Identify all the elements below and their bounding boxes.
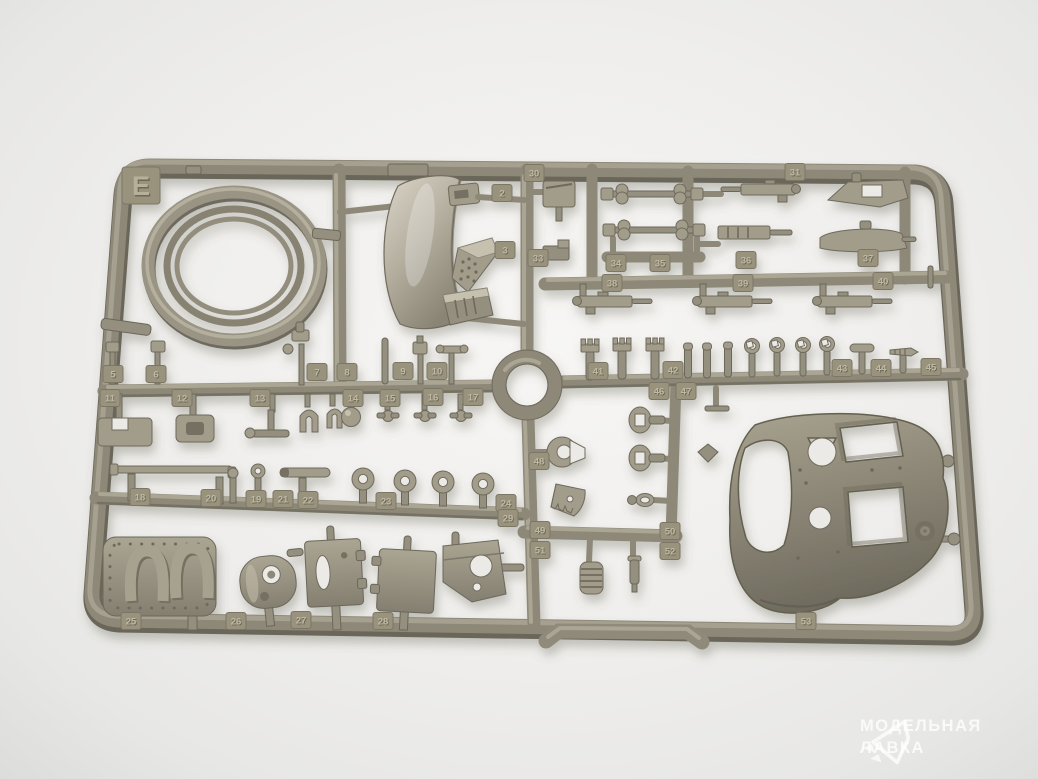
svg-text:19: 19	[251, 495, 262, 506]
svg-text:11: 11	[105, 394, 116, 405]
svg-text:16: 16	[428, 393, 439, 404]
part-number-tag: 2828	[373, 613, 393, 630]
svg-text:42: 42	[668, 366, 679, 377]
svg-text:53: 53	[801, 617, 812, 628]
sprue-photo-svg: E E 223330303131333334343535363637373838…	[0, 0, 1038, 779]
svg-text:38: 38	[607, 279, 618, 290]
svg-text:47: 47	[681, 387, 692, 398]
svg-text:24: 24	[501, 499, 512, 510]
svg-text:52: 52	[665, 547, 676, 558]
svg-text:30: 30	[529, 169, 540, 180]
svg-text:31: 31	[790, 168, 801, 179]
part-number-tag: 1919	[246, 491, 266, 508]
part-number-tag: 3131	[785, 164, 805, 181]
svg-text:20: 20	[206, 494, 217, 505]
svg-text:45: 45	[926, 363, 937, 374]
svg-text:18: 18	[135, 493, 146, 504]
part-number-tag: 1313	[250, 390, 270, 407]
part-number-tag: 3434	[606, 255, 626, 272]
part-number-tag: 4343	[832, 360, 852, 377]
part-number-tag: 2121	[273, 491, 293, 508]
part-number-tag: 5151	[530, 542, 550, 559]
part-number-tag: 55	[103, 366, 123, 383]
part-hatch-plate	[103, 537, 216, 630]
part-number-tag: 2020	[201, 490, 221, 507]
part-number-tag: 4949	[530, 522, 550, 539]
svg-text:49: 49	[535, 526, 546, 537]
svg-text:22: 22	[303, 496, 314, 507]
part-number-tag: 2222	[298, 492, 318, 509]
part-number-tag: 99	[393, 363, 413, 380]
part-number-tag: 1818	[130, 489, 150, 506]
svg-text:2: 2	[499, 189, 504, 200]
svg-text:6: 6	[153, 370, 158, 381]
part-spring	[580, 562, 603, 594]
svg-text:41: 41	[593, 367, 604, 378]
part-number-tag: 4242	[663, 362, 683, 379]
part-number-tag: 2626	[226, 613, 246, 630]
part-number-tag: 33	[495, 242, 515, 259]
svg-text:44: 44	[876, 364, 887, 375]
part-number-tag: 1717	[463, 389, 483, 406]
svg-text:12: 12	[177, 394, 188, 405]
svg-text:48: 48	[534, 457, 545, 468]
part-number-tag: 4040	[873, 273, 893, 290]
part-number-tag: 3838	[602, 275, 622, 292]
part-number-tag: 88	[337, 364, 357, 381]
part-number-tag: 4141	[588, 363, 608, 380]
part-number-tag: 1212	[172, 390, 192, 407]
part-number-tag: 4747	[676, 383, 696, 400]
part-number-tag: 2323	[376, 493, 396, 510]
svg-text:13: 13	[255, 394, 266, 405]
part-number-tag: 3737	[858, 250, 878, 267]
part-number-tag: 5252	[660, 543, 680, 560]
svg-text:23: 23	[381, 497, 392, 508]
part-number-tag: 4848	[529, 453, 549, 470]
svg-text:21: 21	[278, 495, 289, 506]
svg-text:25: 25	[126, 617, 137, 628]
part-number-tag: 66	[146, 366, 166, 383]
part-number-tag: 4646	[649, 383, 669, 400]
part-number-tag: 77	[307, 364, 327, 381]
part-number-tag: 22	[492, 185, 512, 202]
svg-text:40: 40	[878, 277, 889, 288]
part-number-tag: 1414	[343, 390, 363, 407]
part-number-tag: 2424	[496, 495, 516, 512]
svg-text:35: 35	[655, 259, 666, 270]
part-number-tag: 1616	[423, 389, 443, 406]
svg-text:36: 36	[741, 256, 752, 267]
part-number-tag: 1515	[380, 390, 400, 407]
part-number-tag: 2929	[498, 510, 518, 527]
svg-text:27: 27	[296, 616, 307, 627]
part-number-tag: 1010	[427, 363, 447, 380]
svg-text:5: 5	[110, 370, 116, 381]
part-number-tag: 5050	[660, 523, 680, 540]
part-number-tag: 3030	[524, 165, 544, 182]
svg-text:10: 10	[432, 367, 443, 378]
part-number-tag: 4545	[921, 359, 941, 376]
part-number-tag: 3636	[736, 252, 756, 269]
svg-text:34: 34	[611, 259, 622, 270]
svg-text:46: 46	[654, 387, 665, 398]
photo: E E 223330303131333334343535363637373838…	[0, 0, 1038, 779]
part-number-tag: 2525	[121, 613, 141, 630]
svg-text:3: 3	[502, 246, 507, 257]
part-number-tag: 3333	[528, 250, 548, 267]
part-number-tag: 4444	[871, 360, 891, 377]
svg-text:E: E	[132, 171, 150, 201]
part-number-tag: 3535	[650, 255, 670, 272]
svg-text:51: 51	[535, 546, 546, 557]
part-number-tag: 5353	[796, 613, 816, 630]
svg-text:29: 29	[503, 514, 514, 525]
svg-text:43: 43	[837, 364, 848, 375]
svg-text:33: 33	[533, 254, 544, 265]
svg-text:14: 14	[348, 394, 359, 405]
svg-text:15: 15	[385, 394, 396, 405]
svg-text:28: 28	[378, 617, 389, 628]
watermark-logo-icon	[860, 716, 912, 768]
svg-text:37: 37	[863, 254, 874, 265]
svg-text:9: 9	[400, 367, 405, 378]
part-number-tag: 2727	[291, 612, 311, 629]
part-number-tag: 3939	[733, 275, 753, 292]
svg-text:17: 17	[468, 393, 479, 404]
part-number-tag: 1111	[100, 390, 120, 407]
svg-text:8: 8	[344, 368, 349, 379]
svg-text:50: 50	[665, 527, 676, 538]
watermark: МОДЕЛЬНАЯ ЛАВКА	[860, 716, 982, 760]
svg-text:7: 7	[314, 368, 319, 379]
sprue-letter-tag: E E	[122, 167, 160, 204]
svg-text:39: 39	[738, 279, 749, 290]
svg-text:26: 26	[231, 617, 242, 628]
